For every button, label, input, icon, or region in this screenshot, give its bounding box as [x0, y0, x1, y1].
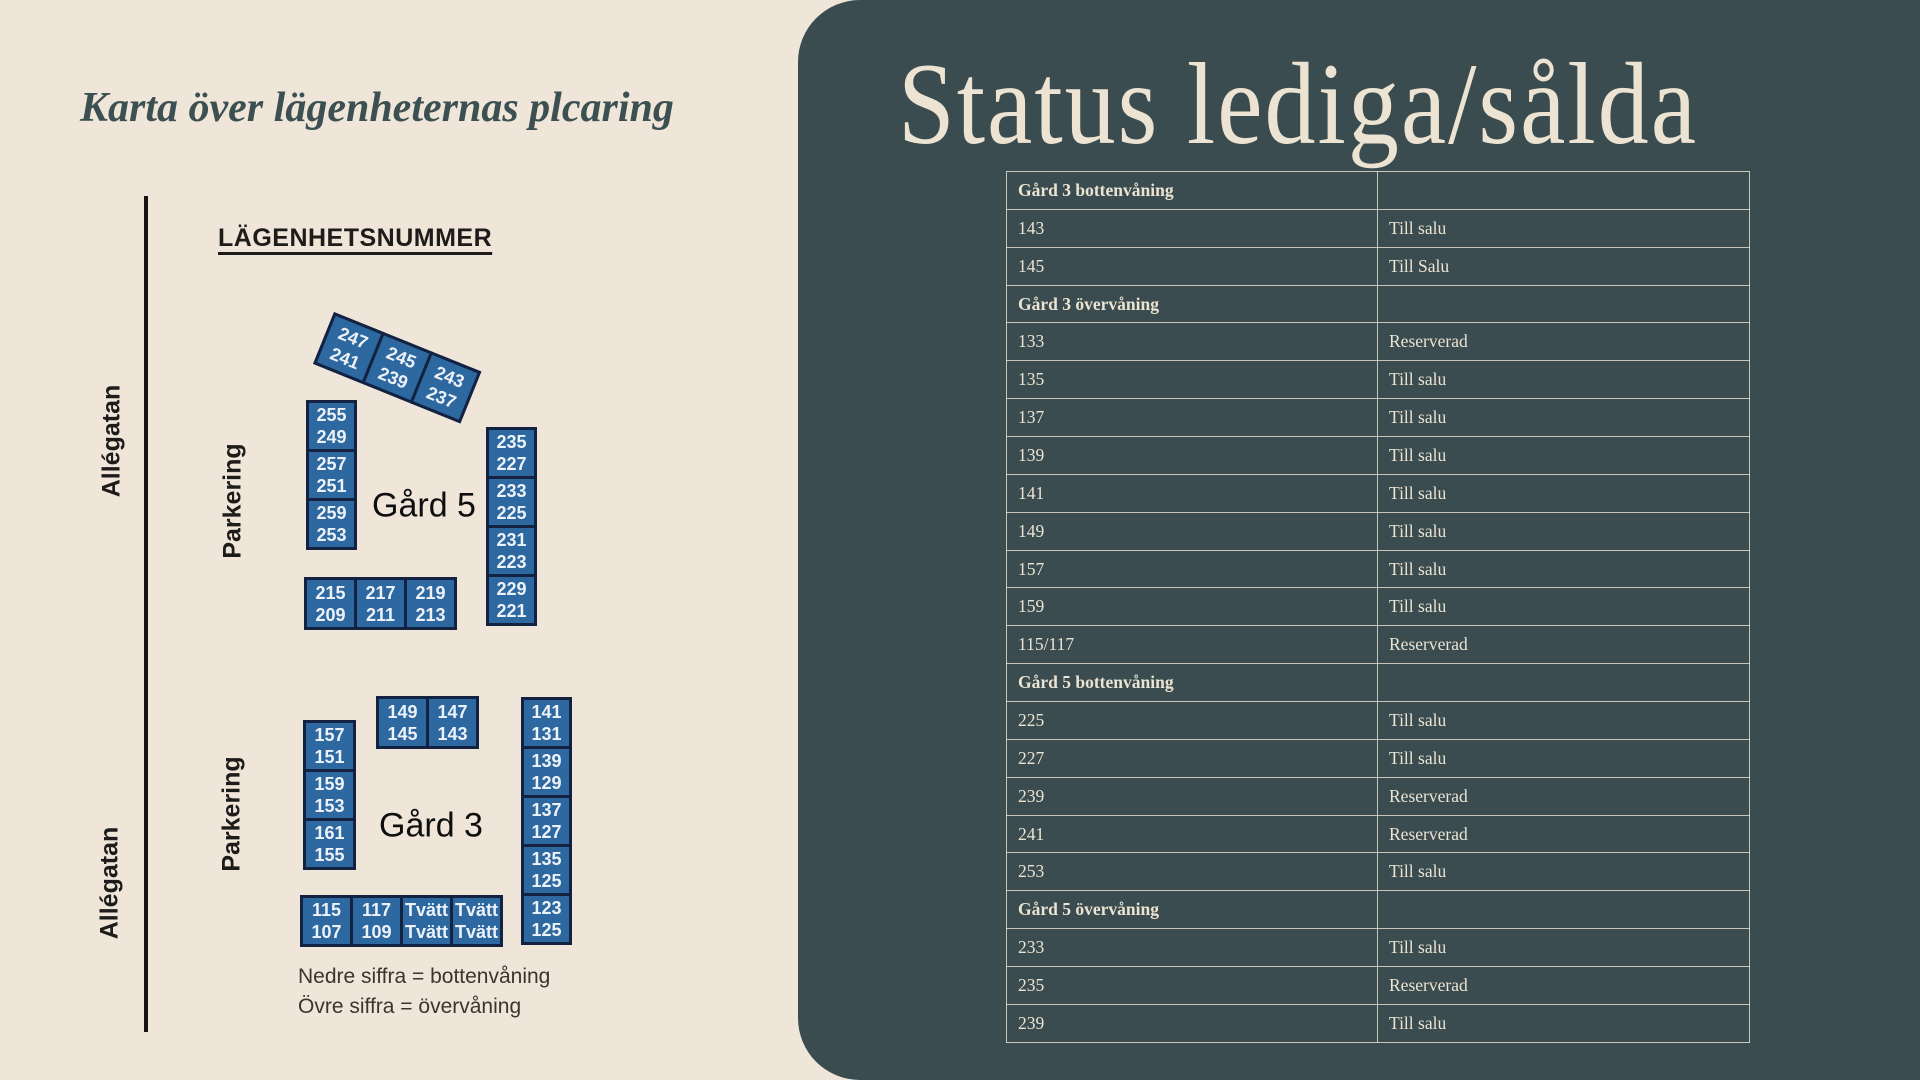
apartment-number-cell: 141 [1007, 474, 1378, 512]
apartment-number-cell: 143 [1007, 209, 1378, 247]
map-box: 157151 [303, 720, 356, 772]
apartment-number-cell: Gård 5 bottenvåning [1007, 664, 1378, 702]
map-box: 137127 [521, 795, 572, 847]
parking-label-bottom: Parkering [218, 756, 247, 871]
apartment-number-cell: 137 [1007, 399, 1378, 437]
map-box-lower-number: 125 [524, 919, 569, 941]
status-cell: Reserverad [1378, 626, 1750, 664]
map-box-lower-number: 145 [379, 723, 426, 745]
map-box: TvättTvätt [450, 895, 503, 947]
map-box-upper-number: 141 [524, 701, 569, 723]
gard3-top-row: 149145147143 [376, 696, 479, 749]
map-box-upper-number: 217 [357, 582, 404, 604]
legend-line-upper-floor: Övre siffra = övervåning [298, 992, 550, 1022]
gard5-left-column: 255249257251259253 [306, 400, 357, 550]
apartment-number-cell: 157 [1007, 550, 1378, 588]
map-box: 115107 [300, 895, 353, 947]
map-box: 233225 [486, 476, 537, 528]
legend-line-bottom-floor: Nedre siffra = bottenvåning [298, 962, 550, 992]
apartment-number-cell: 241 [1007, 815, 1378, 853]
map-box: 229221 [486, 574, 537, 626]
apartment-number-cell: 159 [1007, 588, 1378, 626]
status-cell: Till salu [1378, 361, 1750, 399]
map-box-lower-number: Tvätt [403, 921, 450, 943]
map-box-upper-number: 255 [309, 404, 354, 426]
apartment-numbers-heading: LÄGENHETSNUMMER [218, 224, 468, 253]
map-box: 215209 [304, 577, 357, 630]
parking-label-top: Parkering [219, 443, 248, 558]
map-box-lower-number: 131 [524, 723, 569, 745]
map-title: Karta över lägenheternas plcaring [80, 84, 674, 132]
gard5-right-column: 235227233225231223229221 [486, 427, 537, 626]
map-box-lower-number: 153 [306, 795, 353, 817]
apartment-number-cell: 133 [1007, 323, 1378, 361]
gard5-bottom-row: 215209217211219213 [304, 577, 457, 630]
table-row: 143Till salu [1007, 209, 1750, 247]
map-box-lower-number: 249 [309, 426, 354, 448]
map-box-upper-number: 235 [489, 431, 534, 453]
status-cell: Till salu [1378, 474, 1750, 512]
table-row: 235Reserverad [1007, 967, 1750, 1005]
apartment-number-cell: 235 [1007, 967, 1378, 1005]
map-box: 257251 [306, 449, 357, 501]
gard3-right-column: 141131139129137127135125123125 [521, 697, 572, 945]
apartment-number-cell: Gård 3 övervåning [1007, 285, 1378, 323]
map-box-lower-number: 251 [309, 475, 354, 497]
status-cell [1378, 172, 1750, 210]
table-row: 139Till salu [1007, 437, 1750, 475]
street-label-allegatan-top: Allégatan [98, 385, 127, 498]
apartment-number-cell: 225 [1007, 702, 1378, 740]
status-cell: Till Salu [1378, 247, 1750, 285]
status-cell: Reserverad [1378, 777, 1750, 815]
status-cell [1378, 285, 1750, 323]
map-box: 259253 [306, 498, 357, 550]
map-box-lower-number: 125 [524, 870, 569, 892]
map-box-lower-number: 143 [429, 723, 476, 745]
map-box: 149145 [376, 696, 429, 749]
apartment-number-cell: 149 [1007, 512, 1378, 550]
map-box-lower-number: 151 [306, 746, 353, 768]
apartment-number-cell: Gård 3 bottenvåning [1007, 172, 1378, 210]
map-box-lower-number: 223 [489, 551, 534, 573]
table-row: 233Till salu [1007, 929, 1750, 967]
map-box: 139129 [521, 746, 572, 798]
street-divider-line [144, 196, 148, 1032]
status-cell: Till salu [1378, 739, 1750, 777]
map-box: 217211 [354, 577, 407, 630]
table-row: 133Reserverad [1007, 323, 1750, 361]
apartment-number-cell: 115/117 [1007, 626, 1378, 664]
table-row: 227Till salu [1007, 739, 1750, 777]
status-cell: Reserverad [1378, 967, 1750, 1005]
table-section-row: Gård 5 bottenvåning [1007, 664, 1750, 702]
table-row: 253Till salu [1007, 853, 1750, 891]
apartment-number-cell: Gård 5 övervåning [1007, 891, 1378, 929]
gard3-left-column: 157151159153161155 [303, 720, 356, 870]
map-box-lower-number: 211 [357, 604, 404, 626]
slide: Karta över lägenheternas plcaring LÄGENH… [0, 0, 1920, 1080]
status-cell: Reserverad [1378, 323, 1750, 361]
map-box-lower-number: Tvätt [453, 921, 500, 943]
map-box-lower-number: 127 [524, 821, 569, 843]
map-box: 117109 [350, 895, 403, 947]
map-box-upper-number: 215 [307, 582, 354, 604]
map-box-upper-number: Tvätt [403, 899, 450, 921]
status-cell: Till salu [1378, 929, 1750, 967]
table-row: 159Till salu [1007, 588, 1750, 626]
map-box-upper-number: 233 [489, 480, 534, 502]
map-box-lower-number: 227 [489, 453, 534, 475]
apartment-number-cell: 227 [1007, 739, 1378, 777]
map-box-upper-number: 135 [524, 848, 569, 870]
map-box-upper-number: 157 [306, 724, 353, 746]
map-box-upper-number: 149 [379, 701, 426, 723]
map-box-lower-number: 225 [489, 502, 534, 524]
map-box: 255249 [306, 400, 357, 452]
map-box-upper-number: 259 [309, 502, 354, 524]
map-box-lower-number: 109 [353, 921, 400, 943]
apartment-number-cell: 253 [1007, 853, 1378, 891]
status-cell: Till salu [1378, 550, 1750, 588]
map-box: TvättTvätt [400, 895, 453, 947]
table-section-row: Gård 5 övervåning [1007, 891, 1750, 929]
map-box-upper-number: 229 [489, 578, 534, 600]
table-section-row: Gård 3 övervåning [1007, 285, 1750, 323]
map-box-upper-number: 115 [303, 899, 350, 921]
map-box-upper-number: 137 [524, 799, 569, 821]
status-title: Status lediga/sålda [898, 44, 1698, 166]
apartment-number-cell: 135 [1007, 361, 1378, 399]
map-box: 123125 [521, 893, 572, 945]
status-cell: Till salu [1378, 588, 1750, 626]
map-box-upper-number: 117 [353, 899, 400, 921]
map-box: 235227 [486, 427, 537, 479]
table-row: 239Till salu [1007, 1004, 1750, 1042]
map-box-upper-number: 123 [524, 897, 569, 919]
map-box-upper-number: 161 [306, 822, 353, 844]
map-box: 147143 [426, 696, 479, 749]
map-box-upper-number: 219 [407, 582, 454, 604]
map-box: 159153 [303, 769, 356, 821]
map-box: 141131 [521, 697, 572, 749]
map-box: 135125 [521, 844, 572, 896]
table-row: 137Till salu [1007, 399, 1750, 437]
map-box: 161155 [303, 818, 356, 870]
gard3-bottom-row: 115107117109TvättTvättTvättTvätt [300, 895, 503, 947]
table-row: 141Till salu [1007, 474, 1750, 512]
status-cell: Till salu [1378, 853, 1750, 891]
gard5-label: Gård 5 [372, 487, 476, 526]
map-box-lower-number: 107 [303, 921, 350, 943]
status-cell: Till salu [1378, 437, 1750, 475]
map-box: 231223 [486, 525, 537, 577]
map-box-lower-number: 253 [309, 524, 354, 546]
map-box-upper-number: 147 [429, 701, 476, 723]
map-box-upper-number: 139 [524, 750, 569, 772]
map-box-lower-number: 221 [489, 600, 534, 622]
map-box-lower-number: 129 [524, 772, 569, 794]
status-cell [1378, 664, 1750, 702]
map-box-upper-number: 159 [306, 773, 353, 795]
street-label-allegatan-bottom: Allégatan [96, 827, 125, 940]
map-box-lower-number: 209 [307, 604, 354, 626]
table-row: 239Reserverad [1007, 777, 1750, 815]
gard3-label: Gård 3 [379, 807, 483, 846]
table-row: 149Till salu [1007, 512, 1750, 550]
apartment-number-cell: 239 [1007, 1004, 1378, 1042]
table-section-row: Gård 3 bottenvåning [1007, 172, 1750, 210]
status-cell: Till salu [1378, 1004, 1750, 1042]
status-table: Gård 3 bottenvåning143Till salu145Till S… [1006, 171, 1750, 1043]
status-cell: Till salu [1378, 209, 1750, 247]
table-row: 145Till Salu [1007, 247, 1750, 285]
status-cell: Reserverad [1378, 815, 1750, 853]
map-legend: Nedre siffra = bottenvåning Övre siffra … [298, 962, 550, 1022]
status-cell: Till salu [1378, 399, 1750, 437]
table-row: 115/117Reserverad [1007, 626, 1750, 664]
status-cell: Till salu [1378, 702, 1750, 740]
apartment-number-cell: 239 [1007, 777, 1378, 815]
table-row: 157Till salu [1007, 550, 1750, 588]
map-box-lower-number: 213 [407, 604, 454, 626]
apartment-number-cell: 233 [1007, 929, 1378, 967]
map-box-upper-number: 257 [309, 453, 354, 475]
map-box-lower-number: 155 [306, 844, 353, 866]
table-row: 241Reserverad [1007, 815, 1750, 853]
table-row: 225Till salu [1007, 702, 1750, 740]
map-box-upper-number: 231 [489, 529, 534, 551]
apartment-number-cell: 145 [1007, 247, 1378, 285]
status-cell: Till salu [1378, 512, 1750, 550]
map-box-upper-number: Tvätt [453, 899, 500, 921]
map-box: 219213 [404, 577, 457, 630]
apartment-number-cell: 139 [1007, 437, 1378, 475]
status-cell [1378, 891, 1750, 929]
table-row: 135Till salu [1007, 361, 1750, 399]
